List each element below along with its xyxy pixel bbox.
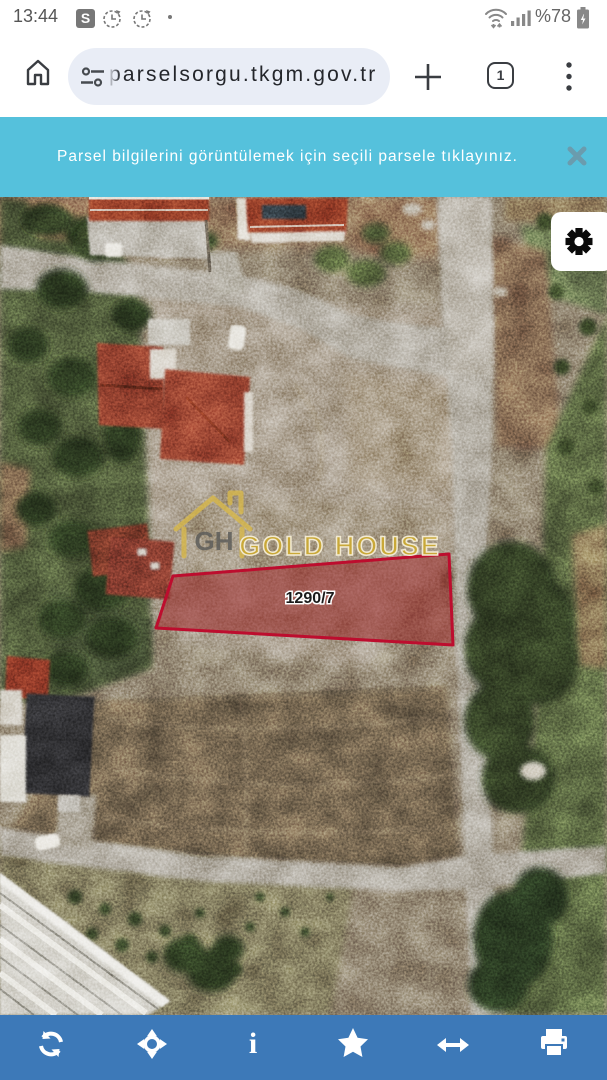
svg-text:GOLD HOUSE: GOLD HOUSE — [239, 531, 441, 561]
svg-text:GH: GH — [195, 526, 234, 556]
svg-text:1290/7: 1290/7 — [286, 590, 335, 607]
